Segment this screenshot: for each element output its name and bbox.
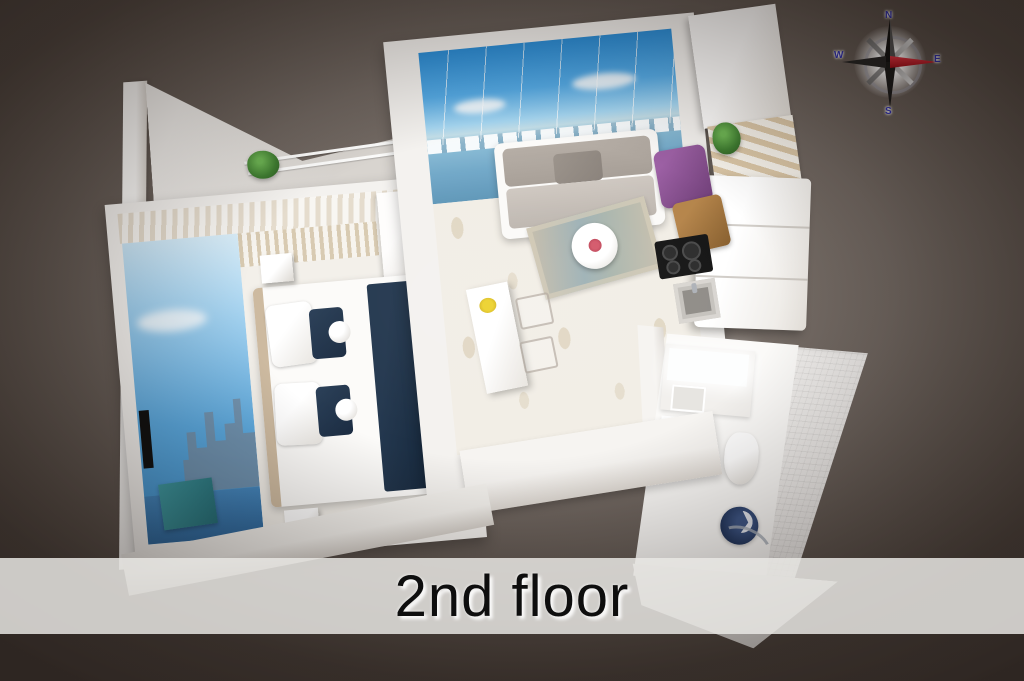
- mural-cloud: [136, 307, 208, 335]
- compass-rose: N E S W: [838, 14, 944, 120]
- bathroom-vanity: [660, 344, 755, 418]
- compass-label-west: W: [834, 50, 843, 61]
- burner: [665, 259, 681, 275]
- lit-mirror: [667, 348, 749, 387]
- floor-title: 2nd floor: [395, 563, 630, 630]
- dining-chair: [519, 336, 559, 374]
- burner: [687, 258, 702, 273]
- mural-skyline: [176, 378, 259, 493]
- dining-chair: [515, 292, 555, 330]
- burner: [661, 244, 679, 262]
- compass-label-south: S: [885, 106, 892, 117]
- entry-closet: [688, 4, 791, 129]
- compass-label-north: N: [885, 10, 892, 21]
- faucet: [691, 283, 698, 294]
- kitchen-sink: [673, 278, 721, 324]
- yellow-flower-vase: [478, 296, 498, 314]
- nightstand: [260, 253, 294, 284]
- teal-bench: [158, 477, 218, 530]
- red-flower-centerpiece: [588, 238, 602, 252]
- compass-label-east: E: [934, 54, 941, 65]
- washbasin: [670, 384, 706, 413]
- sofa-center-pillow: [553, 150, 604, 184]
- floor-banner: 2nd floor: [0, 558, 1024, 634]
- floorplan-render-scene: N E S W 2nd floor: [0, 0, 1024, 681]
